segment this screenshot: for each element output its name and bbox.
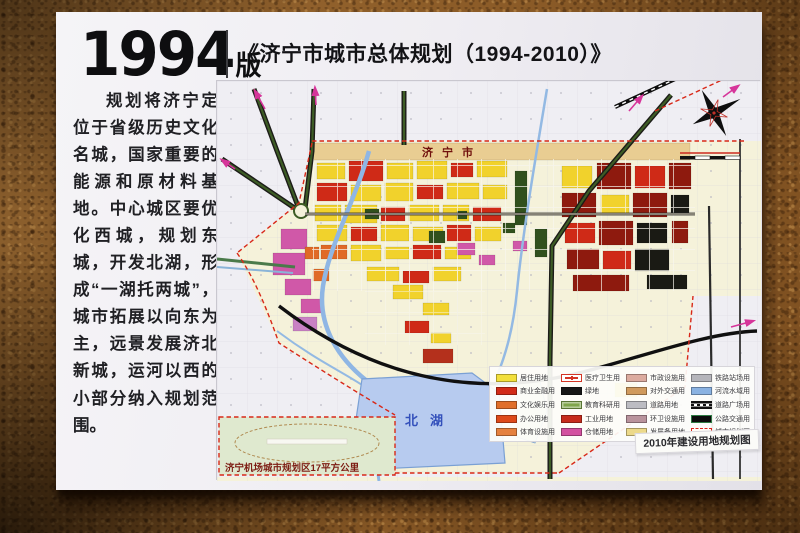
edition-year: 1994版 (80, 19, 261, 90)
header-divider (226, 30, 228, 78)
legend-swatch (561, 415, 582, 423)
legend-label: 居住用地 (520, 373, 548, 383)
legend-label: 环卫设施用地 (650, 414, 685, 424)
legend-label: 市政设施用地 (650, 373, 685, 383)
legend-label: 文化娱乐用地 (520, 400, 555, 410)
legend-item: 公路交通用地 (691, 413, 750, 425)
legend-item: 办公用地 (496, 413, 555, 425)
airport-note-label: 济宁机场城市规划区17平方公里 (225, 462, 360, 474)
legend-item: 河流水域用地 (691, 386, 750, 398)
legend-swatch (626, 387, 647, 395)
legend-item: 铁路站场用地 (691, 372, 750, 384)
legend-label: 对外交通用地 (650, 386, 685, 396)
map-street-grid-south (365, 265, 485, 345)
legend-label: 公路交通用地 (715, 414, 750, 424)
legend-item: 居住用地 (496, 372, 555, 384)
legend-item: 道路用地 (626, 399, 685, 411)
legend-item: 商业金融用地 (496, 386, 555, 398)
legend-item: 医疗卫生用地 (561, 372, 620, 384)
map-title-box: 2010年建设用地规划图 (635, 429, 760, 454)
legend-swatch (691, 374, 712, 382)
airport-inset: 济宁机场城市规划区17平方公里 (219, 417, 395, 475)
legend-swatch (626, 401, 647, 409)
legend-item: 仓储用地 (561, 426, 620, 438)
poster-title: 《济宁市城市总体规划（1994-2010）》 (238, 38, 758, 68)
legend-item: 文化娱乐用地 (496, 399, 555, 411)
legend-swatch (496, 387, 517, 395)
legend-label: 工业用地 (585, 414, 613, 424)
legend-item: 体育设施用地 (496, 426, 555, 438)
legend-swatch (691, 401, 712, 409)
city-label: 济宁市 (422, 145, 482, 159)
north-lake-label: 北湖 (405, 413, 455, 428)
legend-swatch (691, 387, 712, 395)
edition-year-number: 1994 (80, 19, 233, 90)
legend-item: 绿地 (561, 386, 620, 398)
legend-label: 铁路站场用地 (715, 373, 750, 383)
legend-item: 教育科研用地 (561, 399, 620, 411)
legend-swatch (561, 387, 582, 395)
legend-label: 体育设施用地 (520, 427, 555, 437)
legend-swatch (691, 415, 712, 423)
planning-map: 济宁机场城市规划区17平方公里 济宁市 北湖 (216, 80, 760, 480)
legend-swatch (626, 374, 647, 382)
legend-swatch (626, 415, 647, 423)
legend-label: 仓储用地 (585, 427, 613, 437)
legend-swatch (496, 374, 517, 382)
legend-item: 工业用地 (561, 413, 620, 425)
legend-label: 商业金融用地 (520, 386, 555, 396)
legend-swatch (561, 428, 582, 436)
legend-item: 道路广场用地 (691, 399, 750, 411)
legend-label: 教育科研用地 (585, 400, 620, 410)
poster-description: 规划将济宁定位于省级历史文化名城，国家重要的能源和原材料基地。中心城区要优化西城… (73, 88, 218, 440)
cork-board: 1994版 《济宁市城市总体规划（1994-2010）》 规划将济宁定位于省级历… (0, 0, 800, 533)
legend-item: 对外交通用地 (626, 386, 685, 398)
legend-swatch (561, 401, 582, 409)
legend-item: 市政设施用地 (626, 372, 685, 384)
legend-label: 道路用地 (650, 400, 678, 410)
legend-label: 河流水域用地 (715, 386, 750, 396)
legend-item: 环卫设施用地 (626, 413, 685, 425)
legend-swatch (496, 415, 517, 423)
legend-label: 绿地 (585, 386, 599, 396)
legend-swatch (561, 374, 582, 382)
legend-swatch (496, 401, 517, 409)
legend-label: 道路广场用地 (715, 400, 750, 410)
legend-label: 医疗卫生用地 (585, 373, 620, 383)
legend-swatch (496, 428, 517, 436)
poster-card: 1994版 《济宁市城市总体规划（1994-2010）》 规划将济宁定位于省级历… (56, 12, 762, 490)
legend-label: 办公用地 (520, 414, 548, 424)
